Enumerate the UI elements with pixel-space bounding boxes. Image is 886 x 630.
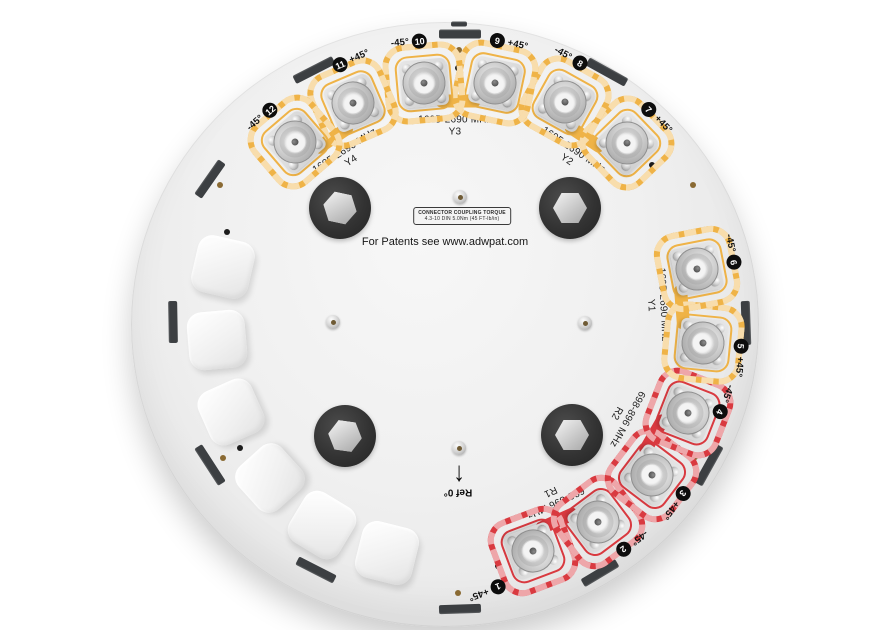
- port-9-number-badge: 9: [489, 32, 507, 50]
- blank-cap: [186, 309, 249, 372]
- port-9-polarity: +45°: [507, 37, 530, 52]
- rim-tick: [451, 22, 467, 27]
- port-6-number-badge: 6: [725, 254, 743, 272]
- hex-nut: [555, 420, 589, 450]
- screw: [452, 441, 466, 455]
- pilot-hole-dot: [224, 229, 230, 235]
- antenna-bottom-photo: CONNECTOR COUPLING TORQUE 4.3-10 DIN 5.0…: [0, 0, 886, 630]
- screw-center: [457, 446, 462, 451]
- pilot-hole-dot: [237, 445, 243, 451]
- hex-nut: [326, 419, 364, 453]
- torque-spec-value: 4.3-10 DIN 5.0Nm (45 FT-lb/in): [418, 216, 506, 222]
- screw-center: [458, 195, 463, 200]
- port-5-number-badge: 5: [733, 338, 749, 354]
- patents-label: For Patents see www.adwpat.com: [362, 236, 528, 248]
- port-10-number-badge: 10: [411, 33, 427, 49]
- mounting-hole: [309, 177, 371, 239]
- pair-id-Y3: Y3: [418, 126, 492, 138]
- brass-insert-dot: [690, 182, 696, 188]
- ref-zero-arrow-icon: ↓: [453, 457, 465, 488]
- port-10-polarity: -45°: [390, 37, 409, 50]
- rim-tick: [168, 301, 178, 343]
- mounting-hole: [314, 405, 376, 467]
- hex-nut: [320, 190, 359, 226]
- brass-insert-dot: [455, 590, 461, 596]
- brass-insert-dot: [217, 182, 223, 188]
- screw: [326, 315, 340, 329]
- screw: [578, 316, 592, 330]
- brass-insert-dot: [220, 455, 226, 461]
- screw: [453, 190, 467, 204]
- port-6-polarity: -45°: [723, 233, 737, 253]
- rim-tick: [439, 604, 481, 614]
- port-5-polarity: +45°: [733, 356, 746, 378]
- screw-center: [583, 321, 588, 326]
- hex-nut: [553, 193, 587, 223]
- torque-spec-plate: CONNECTOR COUPLING TORQUE 4.3-10 DIN 5.0…: [413, 207, 511, 225]
- ref-zero-label: Ref 0°: [444, 487, 472, 498]
- mounting-hole: [541, 404, 603, 466]
- rim-tick: [439, 30, 481, 39]
- mounting-hole: [539, 177, 601, 239]
- screw-center: [331, 320, 336, 325]
